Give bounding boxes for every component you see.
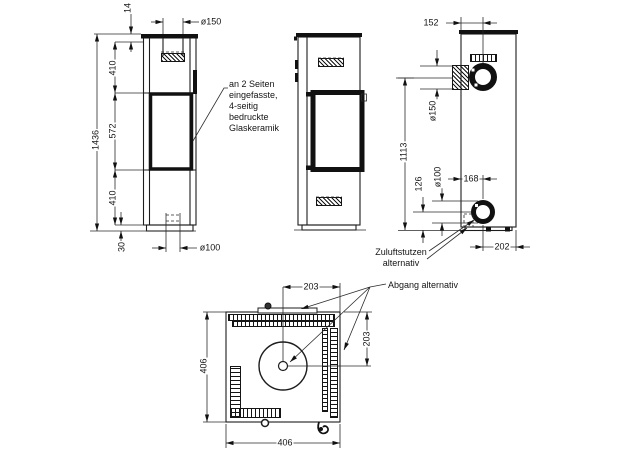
glass-note-line: bedruckte (229, 112, 279, 123)
dim-front-middle: 572 (109, 122, 118, 139)
dim-back-inlet-height: 126 (415, 175, 424, 192)
top-foot (262, 420, 269, 427)
dim-back-inlet-offset: 168 (462, 175, 479, 184)
side-hinge-upper (295, 60, 298, 69)
glass-note-line: eingefasste, (229, 90, 279, 101)
top-plate-knob (265, 303, 271, 309)
dim-back-flue-diameter: ø150 (429, 100, 438, 123)
dim-back-inlet-diameter: ø100 (434, 166, 443, 189)
dim-top-flue-y: 203 (363, 330, 372, 347)
glass-note-leader (193, 88, 228, 141)
technical-drawing-stove: 14 ø150 410 1436 572 410 30 ø100 an 2 Se… (0, 0, 624, 460)
air-inlet-note: Zuluftstutzen alternativ (366, 247, 436, 269)
drawing-linework (0, 0, 624, 460)
glass-note-line: 4-seitig (229, 101, 279, 112)
dim-top-width: 406 (276, 439, 293, 448)
dim-front-top-plate: 14 (124, 2, 133, 14)
top-view (203, 283, 372, 448)
dim-top-depth: 406 (200, 357, 209, 374)
dim-front-inlet-diameter: ø100 (199, 244, 222, 253)
side-view (294, 33, 414, 230)
dim-side-flue-height: 1113 (400, 142, 409, 163)
dim-front-flue-diameter: ø150 (200, 18, 223, 27)
dim-front-base: 30 (118, 241, 127, 253)
dimension-arrowheads (95, 20, 524, 445)
air-inlet-note-line: Zuluftstutzen (366, 247, 436, 258)
glass-note-line: Glaskeramik (229, 123, 279, 134)
dim-back-edge-offset: 202 (493, 243, 510, 252)
dim-front-total-height: 1436 (92, 129, 101, 151)
dim-front-upper: 410 (109, 59, 118, 76)
dim-top-flue-x: 203 (302, 283, 319, 292)
dim-back-flue-offset: 152 (422, 19, 439, 28)
outlet-note-leader (290, 284, 386, 362)
glass-note-line: an 2 Seiten (229, 79, 279, 90)
air-inlet-note-line: alternativ (366, 258, 436, 269)
glass-note: an 2 Seiten eingefasste, 4-seitig bedruc… (229, 79, 279, 134)
side-hinge-lower (295, 73, 298, 82)
top-flue-center (279, 362, 288, 371)
back-view (290, 17, 530, 362)
outlet-note: Abgang alternativ (388, 280, 458, 291)
side-glass-window (313, 93, 362, 170)
dim-front-lower: 410 (109, 189, 118, 206)
front-door-hinge (193, 70, 197, 94)
front-glass-window (151, 94, 192, 169)
